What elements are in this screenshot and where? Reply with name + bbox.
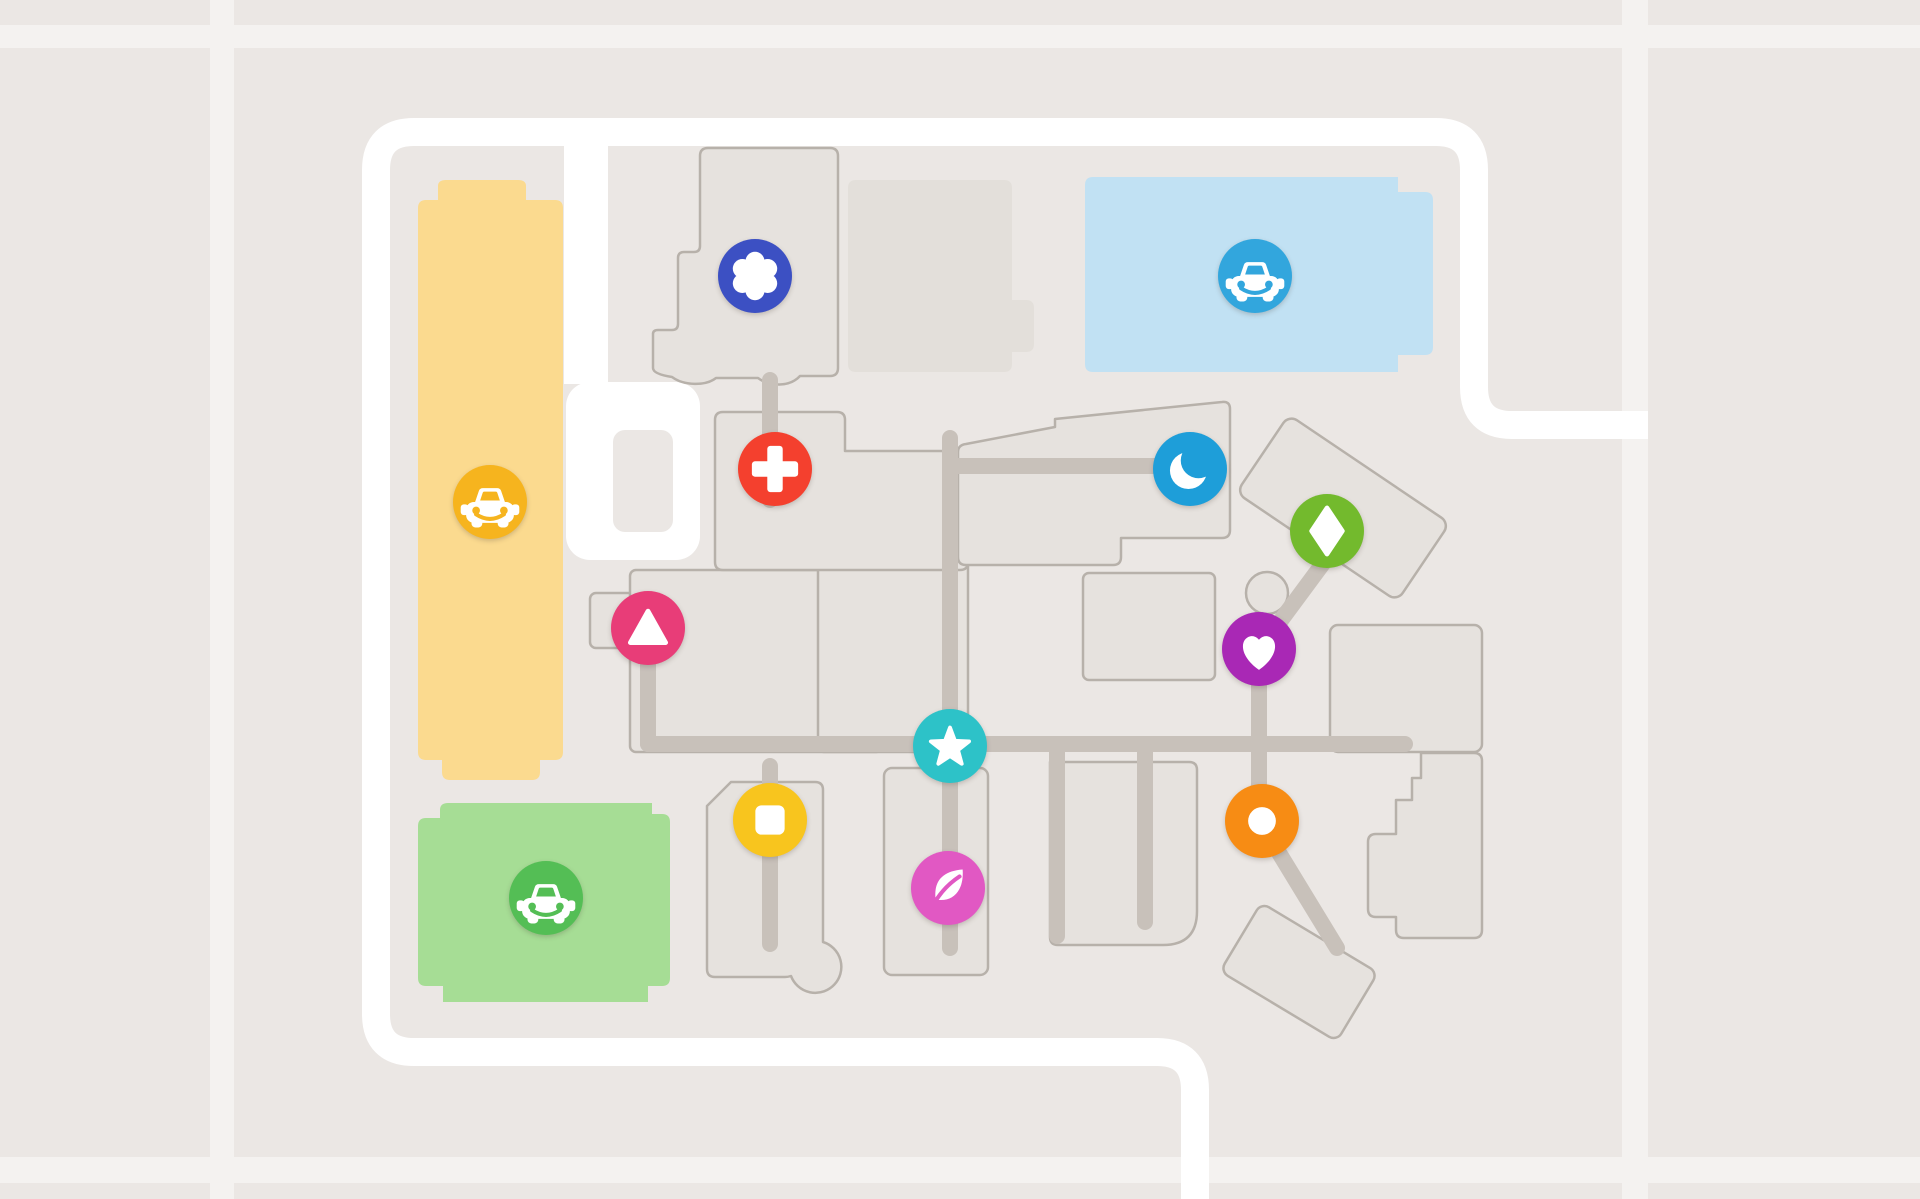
car-icon [509,861,583,935]
poi-leaf[interactable] [911,851,985,925]
poi-moon[interactable] [1153,432,1227,506]
moon-icon [1153,432,1227,506]
poi-star[interactable] [913,709,987,783]
poi-flower[interactable] [718,239,792,313]
car-icon [453,465,527,539]
cross-icon [738,432,812,506]
poi-dot[interactable] [1225,784,1299,858]
poi-triangle[interactable] [611,591,685,665]
poi-diamond[interactable] [1290,494,1364,568]
heart-icon [1222,612,1296,686]
car-icon [1218,239,1292,313]
markers-layer [0,0,1920,1199]
parking-badge-green[interactable] [509,861,583,935]
parking-badge-blue[interactable] [1218,239,1292,313]
leaf-icon [911,851,985,925]
poi-square[interactable] [733,783,807,857]
venue-map[interactable] [0,0,1920,1199]
star-icon [913,709,987,783]
parking-badge-yellow[interactable] [453,465,527,539]
diamond-icon [1290,494,1364,568]
square-icon [733,783,807,857]
poi-medical-cross[interactable] [738,432,812,506]
dot-icon [1225,784,1299,858]
poi-heart[interactable] [1222,612,1296,686]
flower-icon [718,239,792,313]
triangle-icon [611,591,685,665]
